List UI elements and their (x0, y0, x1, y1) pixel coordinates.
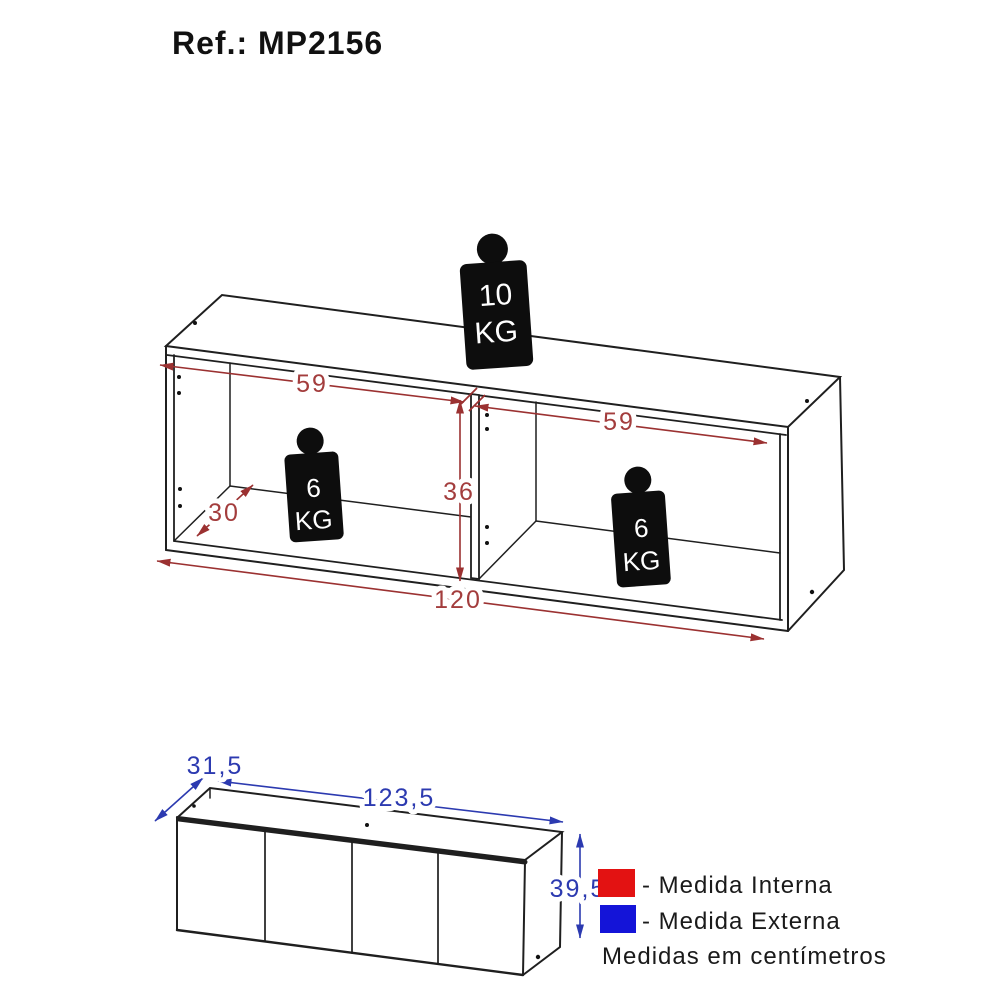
legend-internal-label: - Medida Interna (642, 872, 833, 899)
weight-6kg-right-unit: KG (622, 545, 662, 578)
dim-label-ext-depth: 31,5 (187, 752, 244, 780)
dim-label-total-width: 120 (434, 586, 482, 614)
dim-line-ext-depth (155, 778, 203, 821)
top-open-cabinet-drawing: 59 59 36 30 120 10 KG 6 KG 6 KG (157, 231, 844, 639)
weight-10kg-icon: 10 KG (457, 231, 533, 370)
weight-6kg-left-value: 6 (305, 472, 322, 503)
weight-6kg-left-icon: 6 KG (282, 426, 344, 543)
dim-label-inner-height: 36 (443, 478, 475, 506)
dimension-diagram-page: Ref.: MP2156 (0, 0, 1000, 1000)
legend-internal-swatch (598, 869, 635, 897)
weight-6kg-left-unit: KG (294, 504, 334, 537)
weight-10kg-unit: KG (473, 315, 519, 351)
dim-label-inner-depth: 30 (208, 499, 240, 527)
dim-label-inner-width-right: 59 (603, 408, 635, 436)
legend: - Medida Interna - Medida Externa Medida… (598, 869, 887, 970)
bottom-closed-cabinet-drawing: 31,5 123,5 39,5 (155, 752, 606, 975)
weight-6kg-right-value: 6 (633, 512, 650, 543)
weight-10kg-value: 10 (478, 278, 514, 313)
dimension-diagram: Ref.: MP2156 (0, 0, 1000, 1000)
legend-external-label: - Medida Externa (642, 908, 841, 935)
legend-external-swatch (600, 905, 636, 933)
weight-6kg-right-icon: 6 KG (609, 465, 671, 588)
dim-label-ext-height: 39,5 (550, 875, 607, 903)
page-title: Ref.: MP2156 (172, 25, 383, 61)
closed-cabinet-bottom-edge (177, 930, 523, 975)
dim-label-ext-width: 123,5 (363, 784, 436, 812)
closed-cabinet-right-face (523, 832, 562, 975)
dim-label-inner-width-left: 59 (296, 370, 328, 398)
legend-units-note: Medidas em centímetros (602, 943, 887, 970)
